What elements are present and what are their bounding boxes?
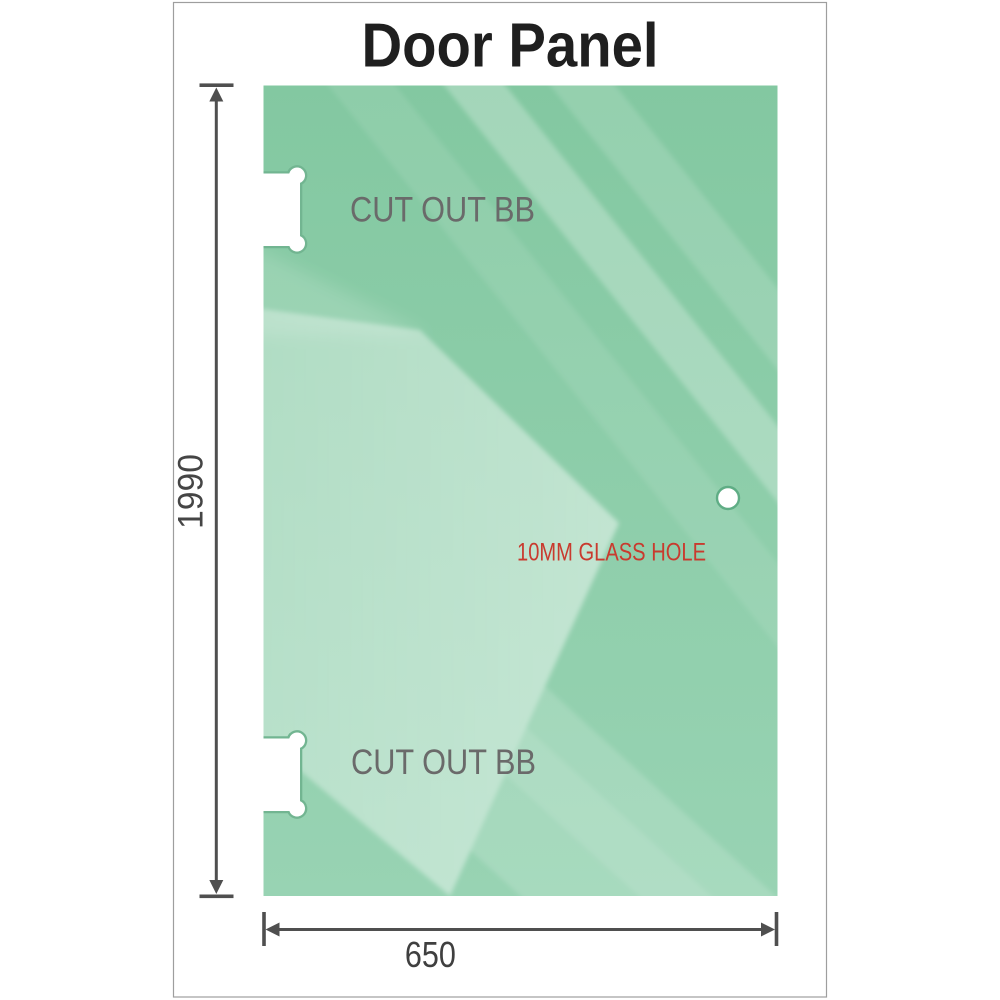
svg-text:10MM GLASS HOLE: 10MM GLASS HOLE bbox=[517, 539, 706, 567]
svg-text:CUT OUT BB: CUT OUT BB bbox=[351, 743, 536, 782]
svg-text:CUT OUT BB: CUT OUT BB bbox=[350, 190, 535, 229]
svg-text:Door Panel: Door Panel bbox=[362, 11, 659, 81]
svg-text:1990: 1990 bbox=[172, 454, 211, 529]
svg-text:650: 650 bbox=[405, 934, 456, 975]
